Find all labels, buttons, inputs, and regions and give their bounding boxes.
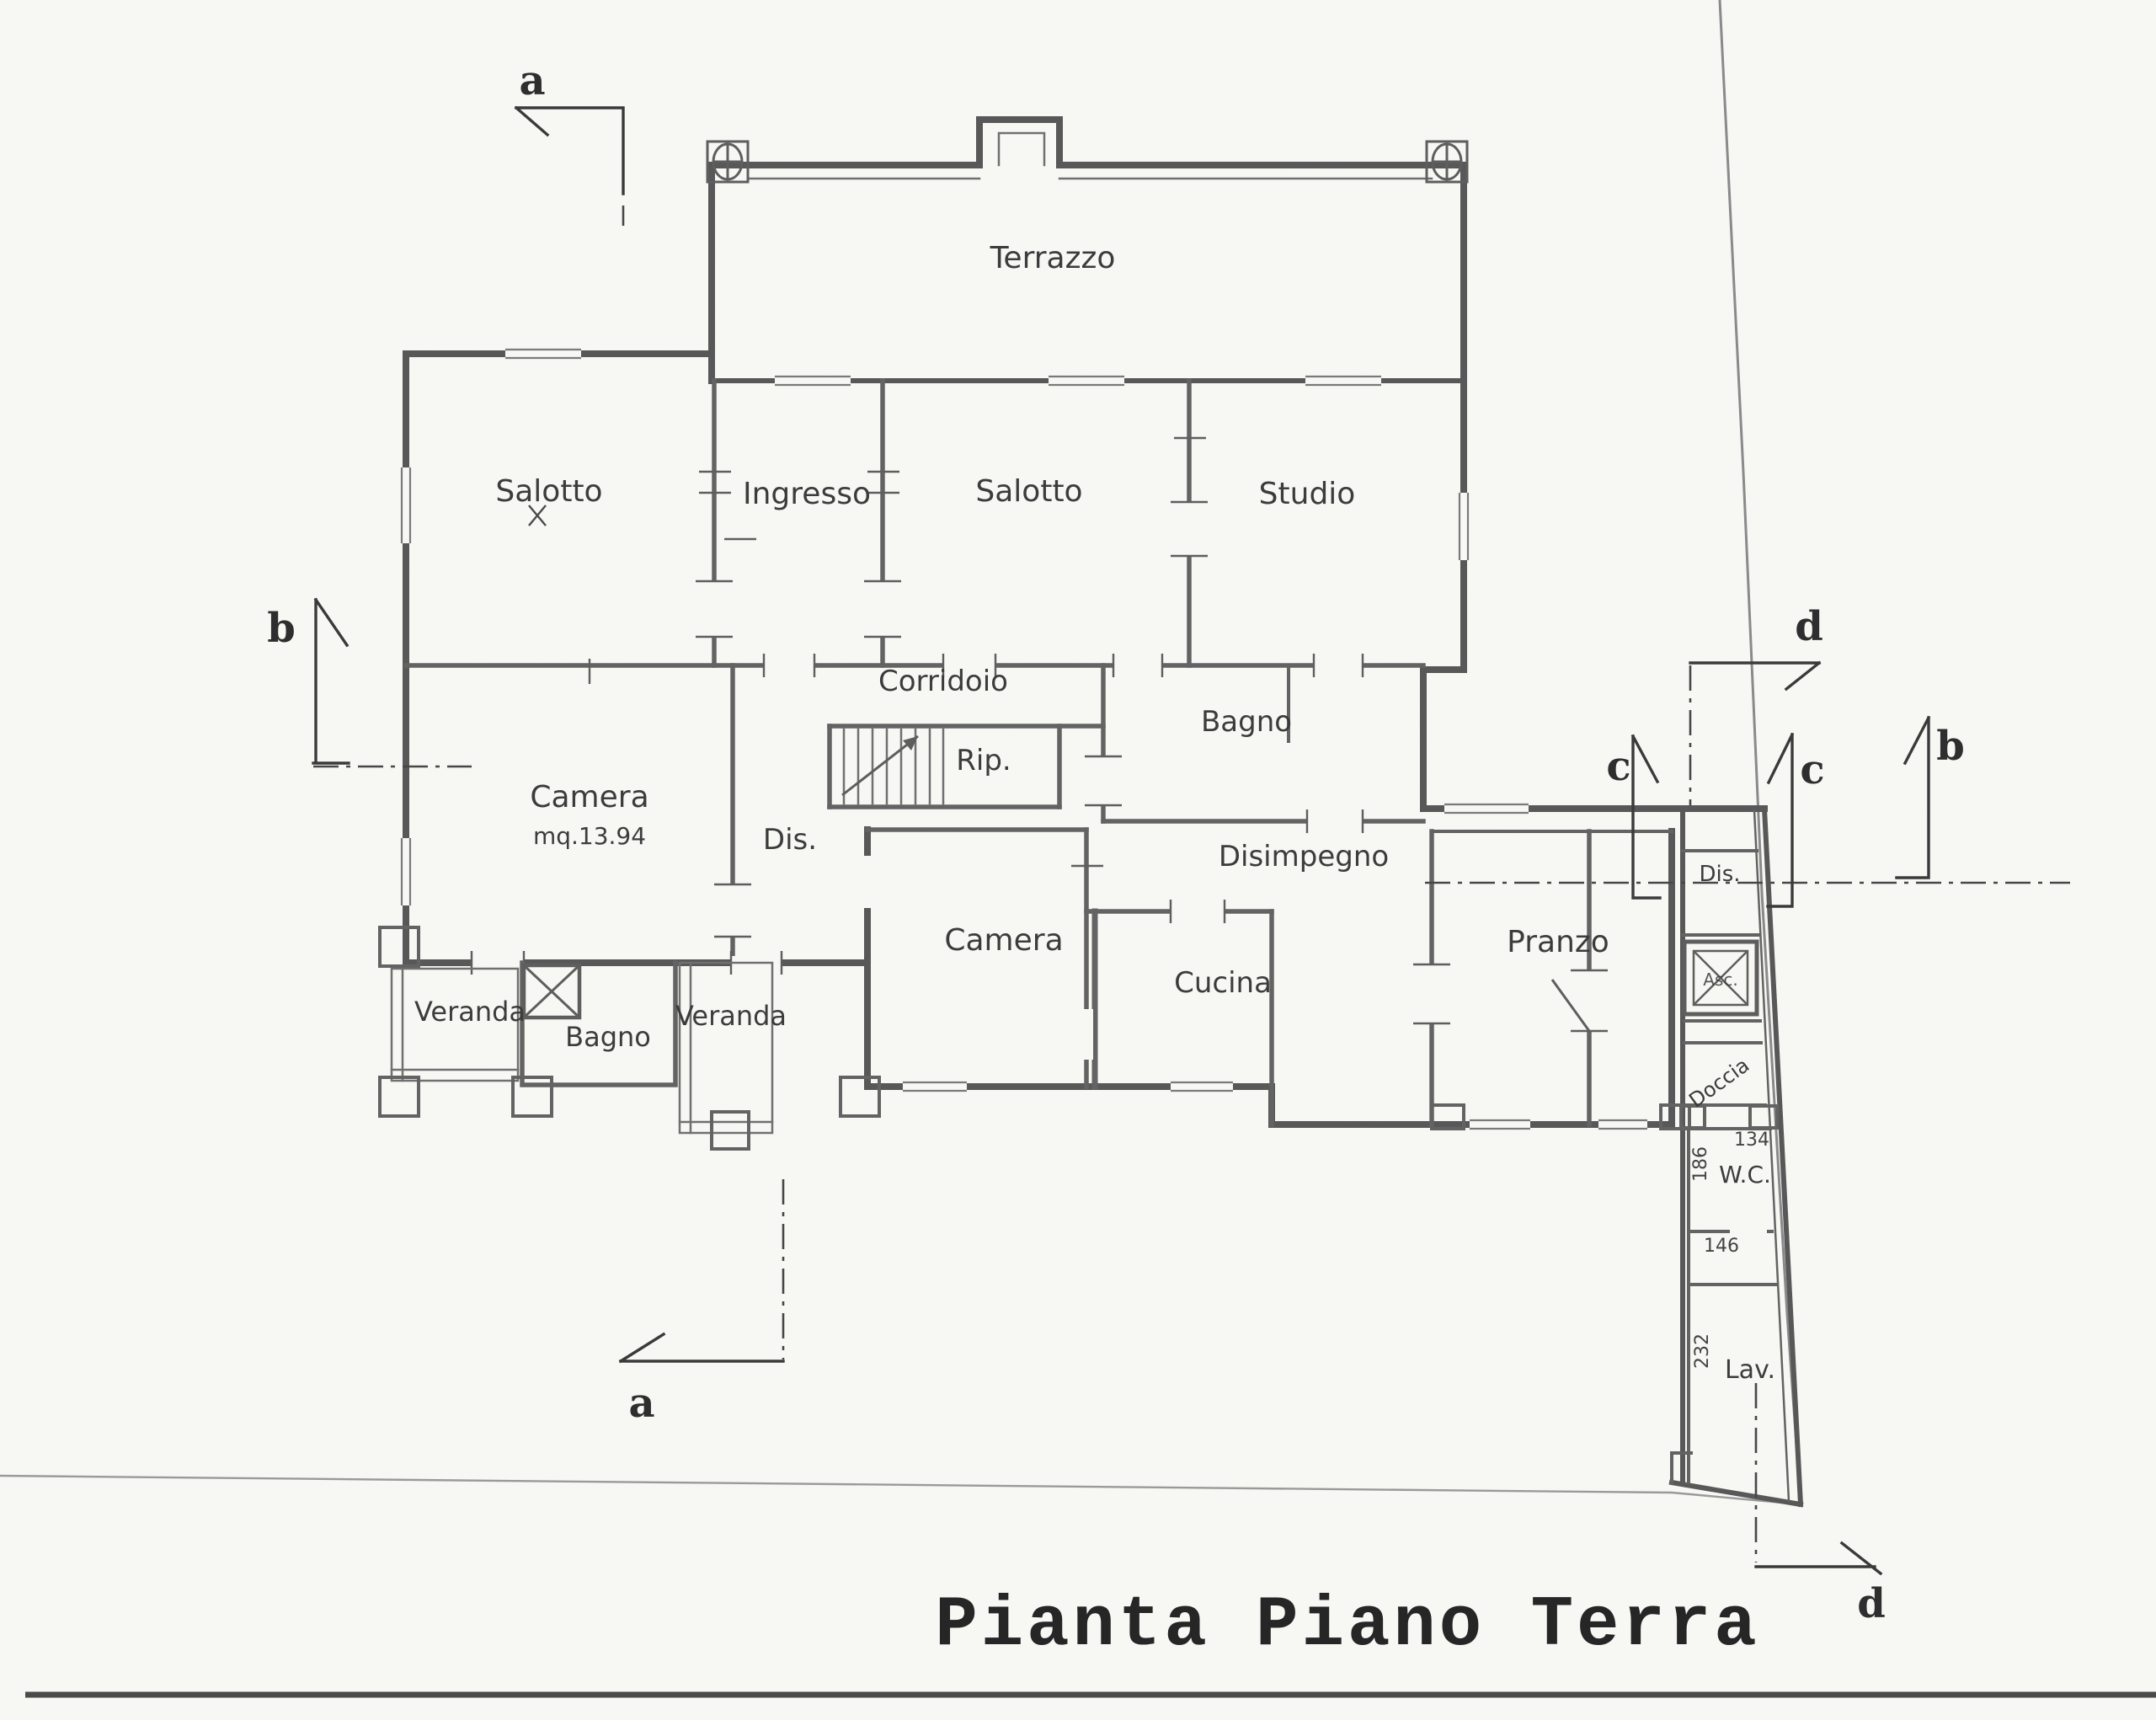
section-letter-c-right: c [1800, 746, 1824, 793]
room-label-ingresso: Ingresso [743, 477, 871, 511]
dim-186: 186 [1690, 1146, 1711, 1182]
room-label-wc: W.C. [1719, 1161, 1771, 1189]
room-label-veranda-2: Veranda [675, 1000, 787, 1032]
room-label-cucina: Cucina [1174, 966, 1272, 1000]
section-letter-a-top: a [519, 57, 545, 104]
room-label-pranzo: Pranzo [1507, 925, 1609, 959]
dim-134: 134 [1734, 1130, 1769, 1151]
room-label-camera-1-area: mq.13.94 [533, 822, 646, 850]
section-letter-b-right: b [1936, 723, 1965, 770]
room-label-bagno-1: Bagno [1201, 705, 1292, 739]
dim-232: 232 [1692, 1333, 1713, 1369]
section-letter-c-left: c [1606, 743, 1630, 790]
section-letter-a-bottom: a [628, 1380, 654, 1427]
room-label-corridoio: Corridoio [878, 665, 1008, 698]
room-label-bagno-2: Bagno [565, 1021, 651, 1053]
section-letter-d-top: d [1795, 603, 1823, 650]
room-label-disimpegno: Disimpegno [1219, 840, 1389, 873]
room-label-salotto-1: Salotto [495, 474, 602, 509]
room-label-dis-2: Dis. [1699, 862, 1740, 887]
dim-146: 146 [1704, 1236, 1739, 1257]
room-label-terrazzo: Terrazzo [990, 241, 1116, 275]
page-title: Pianta Piano Terra [935, 1586, 1759, 1666]
room-label-asc: Asc. [1703, 970, 1737, 990]
scanned-floor-plan-page: a a b b c c d d Terrazzo Salotto Ingress… [0, 0, 2156, 1720]
room-label-rip: Rip. [956, 744, 1011, 777]
room-label-salotto-2: Salotto [975, 474, 1082, 509]
room-label-veranda-1: Veranda [414, 996, 526, 1028]
section-letter-d-bottom: d [1857, 1580, 1886, 1627]
room-label-studio: Studio [1259, 477, 1356, 511]
section-letter-b-left: b [267, 605, 296, 652]
room-label-camera-2: Camera [944, 923, 1063, 958]
floor-plan: a a b b c c d d Terrazzo Salotto Ingress… [0, 0, 2156, 1720]
room-label-dis-1: Dis. [763, 823, 817, 857]
room-label-lav: Lav. [1725, 1355, 1775, 1385]
room-label-camera-1: Camera [530, 780, 648, 815]
